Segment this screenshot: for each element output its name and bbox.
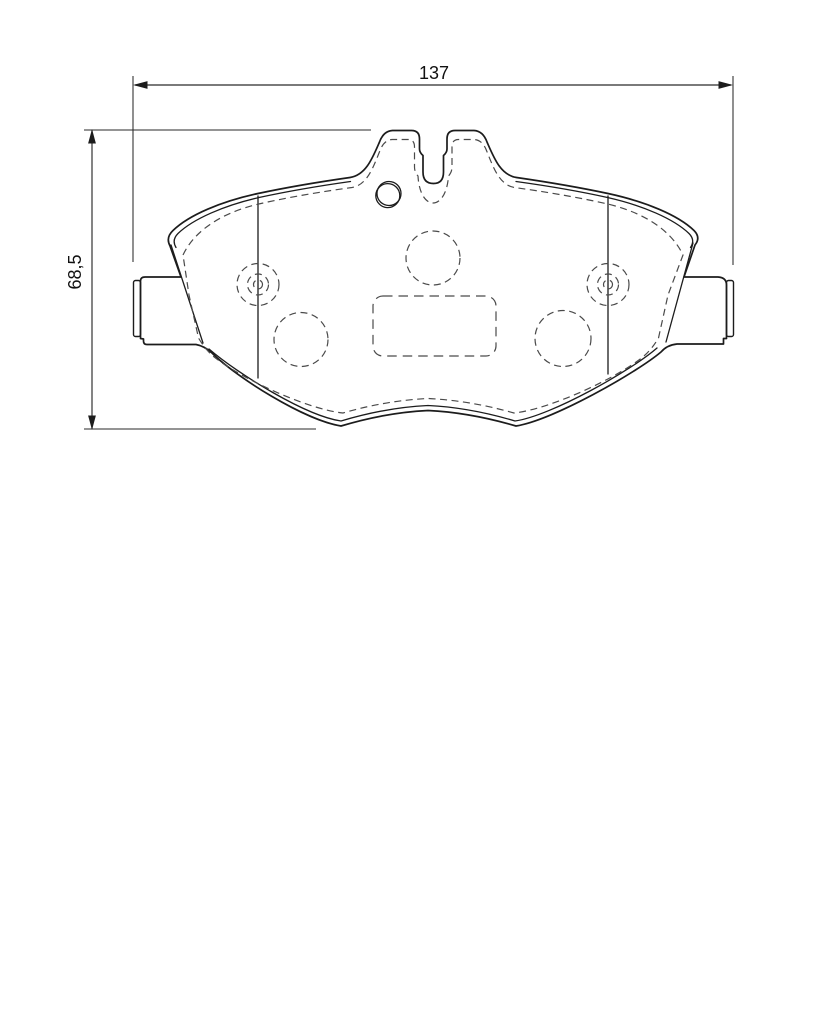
right-abutment-tab	[727, 281, 734, 337]
top-left-chamfer-line	[174, 182, 350, 248]
left-plate-edge-line	[171, 245, 203, 343]
arrow-down-icon	[88, 416, 96, 431]
center-hidden-circle	[406, 231, 460, 285]
sensor-hole-inner-edge	[376, 184, 400, 208]
backing-plate	[134, 131, 734, 427]
arrow-left-icon	[133, 81, 148, 89]
height-dimension-label: 68,5	[65, 254, 85, 289]
brake-pad-drawing: 137 68,5	[0, 0, 827, 1024]
arrow-right-icon	[719, 81, 734, 89]
center-hidden-rectangle	[373, 296, 496, 356]
left-hidden-circle	[274, 313, 328, 367]
height-dimension: 68,5	[65, 129, 371, 430]
arrow-up-icon	[88, 129, 96, 144]
width-dimension: 137	[133, 63, 733, 265]
right-plate-edge-line	[666, 243, 693, 342]
width-dimension-label: 137	[419, 63, 449, 83]
backing-plate-outline	[141, 131, 727, 427]
left-abutment-tab	[134, 281, 141, 337]
drawing-canvas: 137 68,5	[0, 0, 827, 1024]
right-hidden-circle	[535, 311, 591, 367]
